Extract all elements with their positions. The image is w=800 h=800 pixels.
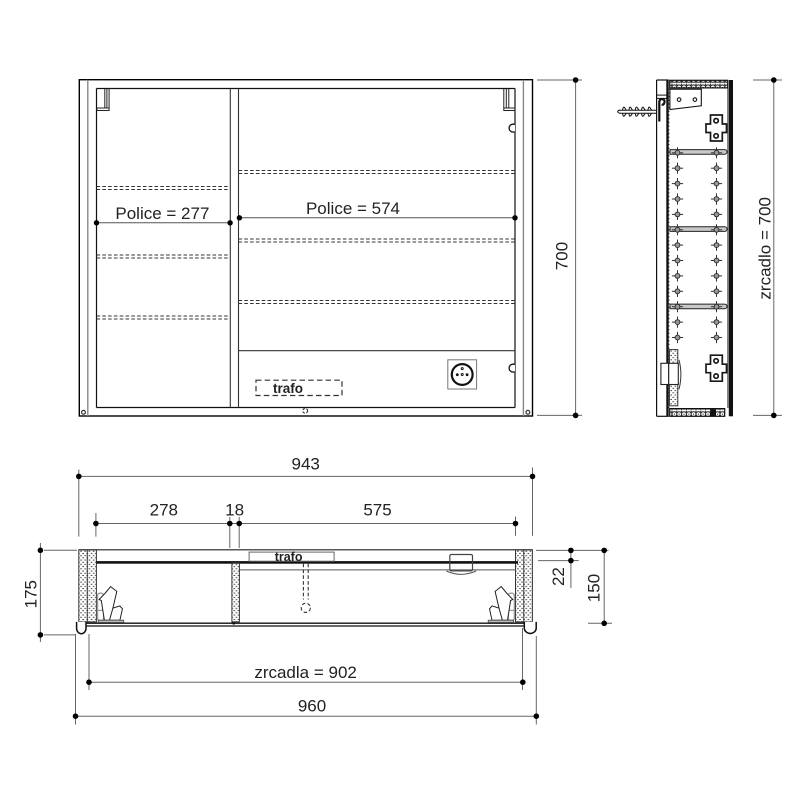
svg-text:960: 960 [298, 697, 326, 716]
svg-text:150: 150 [584, 574, 603, 602]
svg-text:575: 575 [363, 500, 391, 519]
svg-text:943: 943 [292, 454, 320, 473]
svg-text:trafo: trafo [273, 381, 303, 396]
svg-text:700: 700 [552, 242, 571, 270]
svg-text:18: 18 [225, 500, 244, 519]
svg-text:175: 175 [22, 580, 41, 608]
svg-text:Police = 277: Police = 277 [115, 204, 209, 223]
svg-text:Police = 574: Police = 574 [306, 199, 400, 218]
svg-text:zrcadlo = 700: zrcadlo = 700 [755, 197, 774, 300]
svg-text:trafo: trafo [275, 550, 303, 564]
svg-text:zrcadla = 902: zrcadla = 902 [254, 663, 357, 682]
svg-text:278: 278 [150, 500, 178, 519]
svg-text:22: 22 [549, 567, 568, 586]
